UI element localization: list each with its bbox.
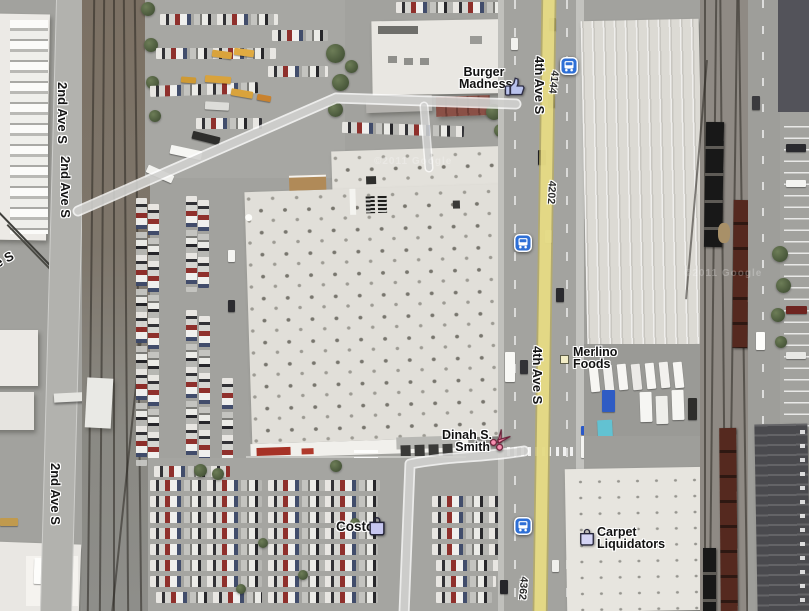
business-label-carpet-liquidators[interactable]: Carpet Liquidators (597, 526, 665, 550)
street-label-2nd-ave-s: 2nd Ave S (56, 82, 69, 144)
street-label-2nd-ave-s: 2nd Ave S (59, 156, 72, 218)
label-line: Foods (573, 358, 617, 370)
address-label-4362: 4362 (516, 576, 529, 600)
business-label-dinah-s-smith[interactable]: Dinah S. Smith (442, 429, 490, 453)
imagery-watermark: ©2011 Google (684, 268, 762, 279)
bus-stop-icon[interactable] (514, 517, 532, 535)
business-label-burger-madness[interactable]: Burger Madness (459, 66, 509, 90)
street-label-4th-ave-s: 4th Ave S (533, 56, 546, 114)
shopping-bag-icon[interactable] (577, 527, 597, 547)
bus-stop-icon[interactable] (514, 234, 532, 252)
bus-stop-icon[interactable] (560, 57, 578, 75)
label-line: Smith (442, 441, 490, 453)
square-marker-icon[interactable] (560, 355, 569, 364)
address-label-4202: 4202 (545, 180, 557, 204)
map-canvas[interactable]: ©2011 Google ©2011 Google 2nd Ave S 2nd … (0, 0, 809, 611)
imagery-watermark: ©2011 Google (374, 156, 452, 167)
business-label-merlino-foods[interactable]: Merlino Foods (573, 346, 617, 370)
street-label-4th-ave-s: 4th Ave S (531, 346, 544, 404)
shopping-bag-icon[interactable] (366, 515, 388, 537)
thumbs-up-icon[interactable] (503, 75, 527, 99)
address-label-4144: 4144 (546, 70, 560, 95)
street-label-2nd-ave-s: 2nd Ave S (49, 463, 62, 525)
label-line: Liquidators (597, 538, 665, 550)
road-overlay (0, 0, 809, 611)
label-line: Madness (459, 78, 509, 90)
